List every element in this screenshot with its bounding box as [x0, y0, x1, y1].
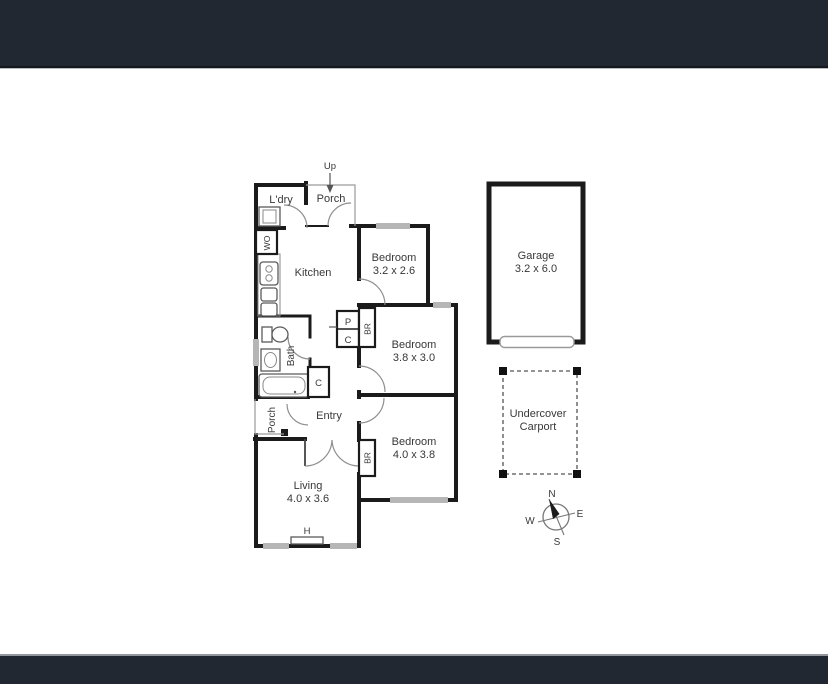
kitchen-sink-icon: [261, 288, 277, 316]
bedroom1-dims: 3.2 x 2.6: [373, 265, 415, 277]
up-arrow: Up: [324, 161, 336, 193]
carport-post: [499, 470, 507, 478]
cupboard-label: C: [345, 335, 352, 346]
robe-label: BR: [363, 323, 373, 335]
garage: Garage 3.2 x 6.0: [489, 184, 583, 348]
laundry-label: L'dry: [269, 194, 293, 206]
carport-post: [573, 367, 581, 375]
compass-rose-icon: N E W S: [525, 489, 583, 548]
down-arrowhead-icon: [327, 185, 334, 193]
entry-label: Entry: [316, 410, 342, 422]
compass-east-label: E: [577, 509, 584, 520]
hall-cupboard-label: C: [315, 378, 322, 389]
up-label: Up: [324, 161, 336, 172]
compass-north-label: N: [548, 489, 555, 500]
robe-bedroom3-box: BR: [359, 440, 375, 476]
living-label: Living: [294, 480, 323, 492]
bedroom3-dims: 4.0 x 3.8: [393, 449, 435, 461]
compass-needle: [549, 499, 560, 519]
robe-bedroom2-box: BR: [359, 308, 375, 347]
floor-plan: Up: [0, 0, 828, 684]
compass-west-label: W: [525, 516, 535, 527]
carport-post: [499, 367, 507, 375]
bathroom-basin-icon: [261, 349, 280, 371]
carport: Undercover Carport: [499, 367, 581, 478]
compass-south-label: S: [554, 537, 561, 548]
bedroom3-label: Bedroom: [392, 436, 437, 448]
hall-cupboard-box: C: [308, 367, 329, 397]
garage-dims: 3.2 x 6.0: [515, 263, 557, 275]
screenshot-frame: Up: [0, 0, 828, 684]
porch-top-label: Porch: [317, 193, 346, 205]
toilet-icon: [262, 327, 288, 342]
heater-hearth: [291, 537, 323, 544]
bathtub-icon: [259, 374, 309, 397]
living-dims: 4.0 x 3.6: [287, 493, 329, 505]
porch-post: [281, 429, 288, 436]
pantry-cupboard-box: P C: [329, 311, 359, 347]
robe-label: BR: [363, 452, 373, 464]
bedroom2-dims: 3.8 x 3.0: [393, 352, 435, 364]
carport-post: [573, 470, 581, 478]
bedroom1-label: Bedroom: [372, 252, 417, 264]
bedroom2-label: Bedroom: [392, 339, 437, 351]
bath-label: Bath: [286, 346, 297, 367]
cooktop-icon: [260, 262, 278, 285]
carport-label-line1: Undercover: [510, 408, 567, 420]
garage-door: [500, 337, 574, 348]
porch-side-label: Porch: [267, 407, 278, 433]
pantry-label: P: [345, 317, 351, 328]
laundry-trough-icon: [259, 207, 280, 226]
room-labels: L'dry Porch Kitchen Bedroom 3.2 x 2.6 Be…: [267, 193, 436, 537]
heater-label: H: [304, 526, 311, 537]
garage-label: Garage: [518, 250, 555, 262]
carport-label-line2: Carport: [520, 421, 557, 433]
kitchen-label: Kitchen: [295, 267, 332, 279]
wall-oven-box: WO: [256, 230, 277, 254]
wall-oven-label: WO: [262, 235, 272, 250]
